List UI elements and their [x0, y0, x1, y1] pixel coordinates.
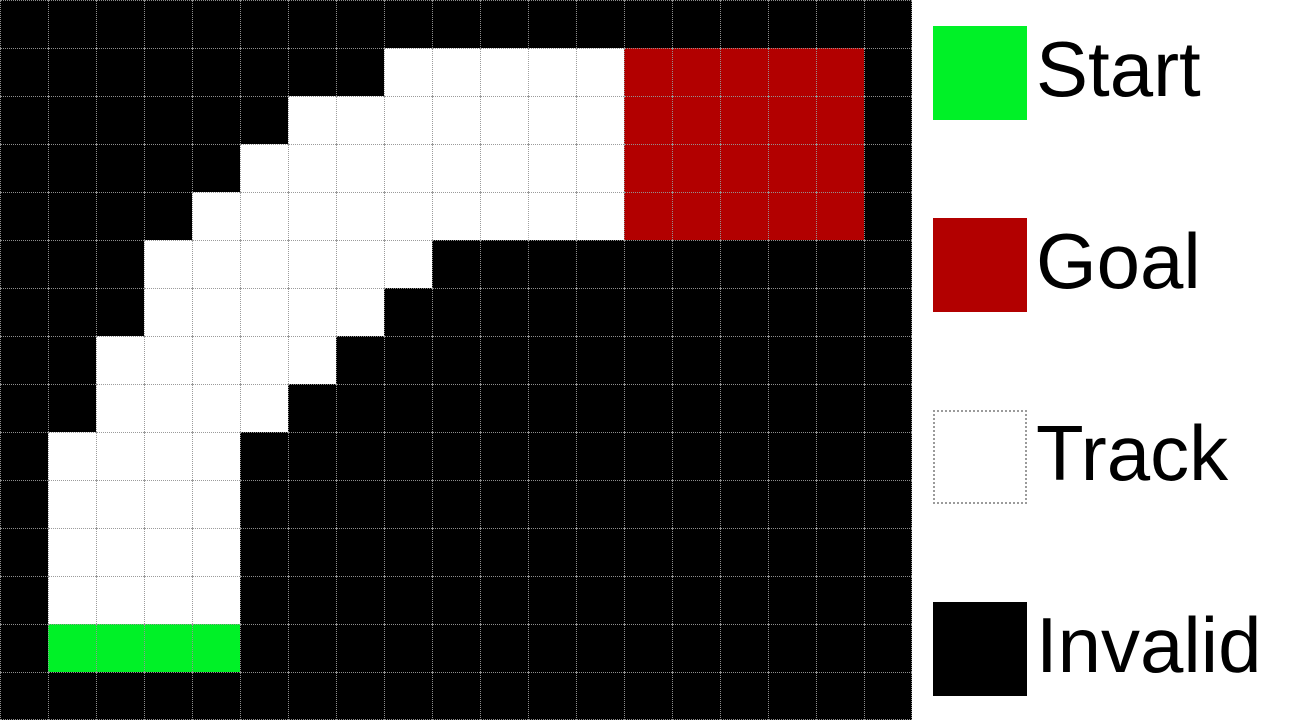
grid-cell-invalid — [672, 624, 720, 672]
grid-cell-track — [192, 240, 240, 288]
legend-panel: Start Goal Track Invalid — [912, 0, 1302, 720]
invalid-swatch — [933, 602, 1027, 696]
grid-cell-invalid — [240, 48, 288, 96]
grid-cell-goal — [672, 144, 720, 192]
grid-cell-track — [144, 336, 192, 384]
legend-label-invalid: Invalid — [1036, 606, 1261, 684]
grid-cell-invalid — [624, 528, 672, 576]
grid-cell-invalid — [816, 528, 864, 576]
grid-cell-track — [240, 144, 288, 192]
grid-cell-invalid — [240, 96, 288, 144]
grid-cell-invalid — [480, 576, 528, 624]
grid-cell-track — [288, 288, 336, 336]
grid-cell-invalid — [384, 384, 432, 432]
grid-cell-invalid — [432, 480, 480, 528]
legend-item-goal: Goal — [933, 218, 1201, 312]
grid-cell-invalid — [192, 48, 240, 96]
grid-cell-invalid — [576, 576, 624, 624]
grid-cell-track — [432, 96, 480, 144]
grid-cell-invalid — [432, 528, 480, 576]
grid-cell-track — [144, 480, 192, 528]
grid-cell-track — [480, 48, 528, 96]
grid-cell-invalid — [672, 0, 720, 48]
grid-cell-invalid — [864, 240, 912, 288]
grid-cell-invalid — [576, 384, 624, 432]
grid-cell-start — [144, 624, 192, 672]
legend-label-track: Track — [1036, 414, 1228, 492]
grid-cell-invalid — [432, 384, 480, 432]
grid-cell-invalid — [48, 240, 96, 288]
grid-cell-track — [288, 96, 336, 144]
grid-cell-track — [240, 192, 288, 240]
grid-cell-invalid — [480, 624, 528, 672]
grid-cell-invalid — [864, 288, 912, 336]
grid-cell-invalid — [240, 576, 288, 624]
grid-cell-invalid — [288, 48, 336, 96]
grid-cell-invalid — [48, 192, 96, 240]
grid-cell-invalid — [336, 672, 384, 720]
grid-cell-invalid — [384, 528, 432, 576]
grid-cell-invalid — [48, 336, 96, 384]
grid-cell-invalid — [720, 0, 768, 48]
grid-cell-track — [144, 528, 192, 576]
grid-cell-track — [480, 96, 528, 144]
grid-cell-invalid — [336, 480, 384, 528]
grid-cell-track — [480, 144, 528, 192]
grid-cell-invalid — [816, 672, 864, 720]
racetrack-figure: Start Goal Track Invalid — [0, 0, 1302, 720]
grid-cell-invalid — [528, 480, 576, 528]
grid-cell-track — [528, 192, 576, 240]
grid-cell-invalid — [48, 384, 96, 432]
grid-cell-invalid — [48, 48, 96, 96]
grid-cell-invalid — [0, 576, 48, 624]
grid-cell-track — [336, 144, 384, 192]
grid-cell-invalid — [576, 432, 624, 480]
grid-cell-invalid — [528, 288, 576, 336]
grid-cell-invalid — [336, 384, 384, 432]
grid-cell-invalid — [384, 288, 432, 336]
grid-cell-invalid — [240, 480, 288, 528]
grid-cell-invalid — [336, 48, 384, 96]
grid-cell-goal — [768, 144, 816, 192]
grid-cell-track — [528, 48, 576, 96]
grid-cell-invalid — [432, 288, 480, 336]
grid-cell-invalid — [864, 528, 912, 576]
grid-cell-goal — [672, 192, 720, 240]
grid-cell-goal — [720, 48, 768, 96]
grid-cell-invalid — [768, 240, 816, 288]
grid-cell-start — [192, 624, 240, 672]
grid-cell-invalid — [624, 480, 672, 528]
grid-cell-goal — [816, 96, 864, 144]
grid-cell-invalid — [384, 336, 432, 384]
grid-cell-invalid — [96, 144, 144, 192]
grid-cell-invalid — [480, 240, 528, 288]
grid-cell-invalid — [672, 288, 720, 336]
grid-cell-goal — [672, 48, 720, 96]
grid-cell-track — [288, 240, 336, 288]
grid-cell-invalid — [384, 624, 432, 672]
grid-cell-track — [528, 144, 576, 192]
grid-cell-invalid — [864, 672, 912, 720]
grid-cell-invalid — [576, 480, 624, 528]
grid-cell-track — [192, 528, 240, 576]
grid-cell-track — [336, 96, 384, 144]
grid-cell-invalid — [432, 432, 480, 480]
grid-cell-invalid — [816, 288, 864, 336]
grid-cell-invalid — [864, 0, 912, 48]
grid-cell-track — [192, 384, 240, 432]
grid-cell-track — [192, 192, 240, 240]
grid-cell-invalid — [48, 0, 96, 48]
grid-cell-track — [144, 288, 192, 336]
grid-cell-invalid — [240, 0, 288, 48]
track-swatch — [933, 410, 1027, 504]
grid-cell-invalid — [768, 288, 816, 336]
grid-cell-invalid — [336, 576, 384, 624]
grid-cell-track — [48, 480, 96, 528]
grid-cell-track — [288, 192, 336, 240]
grid-cell-invalid — [0, 48, 48, 96]
grid-cell-invalid — [576, 624, 624, 672]
grid-cell-goal — [624, 96, 672, 144]
grid-cell-invalid — [768, 432, 816, 480]
grid-cell-invalid — [624, 432, 672, 480]
grid-cell-start — [48, 624, 96, 672]
grid-cell-track — [96, 336, 144, 384]
grid-cell-invalid — [0, 96, 48, 144]
grid-cell-invalid — [144, 144, 192, 192]
grid-cell-invalid — [240, 672, 288, 720]
grid-cell-invalid — [96, 288, 144, 336]
grid-cell-invalid — [576, 528, 624, 576]
grid-cell-invalid — [96, 240, 144, 288]
grid-cell-invalid — [672, 384, 720, 432]
grid-cell-invalid — [0, 480, 48, 528]
grid-cell-invalid — [0, 0, 48, 48]
grid-cell-invalid — [624, 288, 672, 336]
grid-cell-invalid — [480, 672, 528, 720]
grid-cell-track — [96, 528, 144, 576]
grid-cell-invalid — [96, 0, 144, 48]
grid-cell-track — [480, 192, 528, 240]
grid-cell-invalid — [720, 432, 768, 480]
grid-cell-track — [528, 96, 576, 144]
grid-cell-track — [432, 144, 480, 192]
grid-cell-goal — [624, 144, 672, 192]
grid-cell-invalid — [672, 528, 720, 576]
grid-cell-track — [288, 144, 336, 192]
grid-cell-invalid — [432, 576, 480, 624]
grid-cell-invalid — [336, 528, 384, 576]
grid-cell-invalid — [240, 624, 288, 672]
grid-cell-invalid — [48, 288, 96, 336]
grid-cell-invalid — [528, 240, 576, 288]
grid-cell-invalid — [528, 528, 576, 576]
grid-cell-track — [144, 576, 192, 624]
grid-cell-track — [192, 576, 240, 624]
grid-cell-track — [240, 240, 288, 288]
grid-cell-invalid — [288, 576, 336, 624]
grid-cell-invalid — [768, 624, 816, 672]
grid-cell-invalid — [528, 432, 576, 480]
grid-cell-track — [576, 96, 624, 144]
grid-cell-invalid — [576, 288, 624, 336]
grid-cell-track — [192, 336, 240, 384]
grid-cell-invalid — [576, 240, 624, 288]
legend-item-invalid: Invalid — [933, 602, 1261, 696]
grid-cell-goal — [672, 96, 720, 144]
grid-cell-invalid — [0, 192, 48, 240]
grid-cell-invalid — [96, 96, 144, 144]
grid-cell-invalid — [864, 96, 912, 144]
grid-cell-track — [432, 192, 480, 240]
grid-cell-invalid — [672, 432, 720, 480]
grid-cell-invalid — [720, 624, 768, 672]
grid-cell-invalid — [48, 96, 96, 144]
grid-cell-invalid — [768, 480, 816, 528]
grid-cell-invalid — [96, 48, 144, 96]
grid-cell-track — [384, 192, 432, 240]
grid-cell-track — [384, 48, 432, 96]
grid-cell-invalid — [816, 384, 864, 432]
grid-cell-invalid — [0, 672, 48, 720]
grid-cell-goal — [624, 48, 672, 96]
grid-cell-invalid — [528, 384, 576, 432]
grid-cell-invalid — [0, 144, 48, 192]
grid-cell-goal — [720, 144, 768, 192]
grid-cell-invalid — [240, 528, 288, 576]
grid-cell-invalid — [672, 672, 720, 720]
grid-cell-invalid — [816, 336, 864, 384]
grid-cell-invalid — [672, 336, 720, 384]
grid-cell-goal — [624, 192, 672, 240]
grid-cell-invalid — [720, 480, 768, 528]
grid-cell-invalid — [624, 336, 672, 384]
grid-cell-invalid — [432, 672, 480, 720]
grid-cell-invalid — [720, 288, 768, 336]
grid-cell-invalid — [864, 384, 912, 432]
grid-cell-start — [96, 624, 144, 672]
grid-cell-track — [48, 576, 96, 624]
grid-cell-invalid — [816, 240, 864, 288]
grid-cell-invalid — [384, 432, 432, 480]
grid-cell-invalid — [864, 432, 912, 480]
grid-cell-track — [240, 288, 288, 336]
grid-cell-invalid — [0, 528, 48, 576]
grid-cell-invalid — [384, 480, 432, 528]
grid-cell-invalid — [528, 0, 576, 48]
grid-cell-invalid — [624, 240, 672, 288]
grid-cell-invalid — [192, 96, 240, 144]
grid-cell-invalid — [192, 144, 240, 192]
grid-cell-track — [192, 288, 240, 336]
grid-cell-track — [288, 336, 336, 384]
grid-cell-invalid — [528, 624, 576, 672]
grid-cell-invalid — [864, 192, 912, 240]
grid-cell-invalid — [144, 0, 192, 48]
grid-cell-goal — [768, 96, 816, 144]
grid-cell-track — [576, 48, 624, 96]
grid-cell-invalid — [144, 192, 192, 240]
grid-cell-track — [384, 96, 432, 144]
grid-cell-track — [96, 480, 144, 528]
grid-cell-invalid — [768, 0, 816, 48]
grid-cell-track — [144, 432, 192, 480]
grid-cell-invalid — [432, 624, 480, 672]
grid-cell-invalid — [528, 672, 576, 720]
start-swatch — [933, 26, 1027, 120]
grid-cell-invalid — [720, 240, 768, 288]
grid-cell-track — [144, 384, 192, 432]
grid-cell-goal — [768, 192, 816, 240]
grid-cell-invalid — [0, 240, 48, 288]
grid-cell-invalid — [384, 576, 432, 624]
grid-cell-track — [144, 240, 192, 288]
grid-cell-invalid — [768, 528, 816, 576]
grid-cell-invalid — [624, 576, 672, 624]
grid-cell-invalid — [288, 384, 336, 432]
grid-cell-invalid — [336, 336, 384, 384]
goal-swatch — [933, 218, 1027, 312]
grid-cell-track — [576, 144, 624, 192]
grid-cell-invalid — [192, 672, 240, 720]
grid-cell-track — [192, 480, 240, 528]
legend-item-track: Track — [933, 410, 1228, 504]
grid-cell-invalid — [288, 672, 336, 720]
grid-cell-invalid — [672, 240, 720, 288]
grid-cell-invalid — [96, 192, 144, 240]
grid-cell-invalid — [432, 240, 480, 288]
racetrack-grid — [0, 0, 912, 720]
grid-cell-goal — [720, 96, 768, 144]
grid-cell-invalid — [144, 48, 192, 96]
grid-cell-invalid — [768, 336, 816, 384]
grid-cell-invalid — [0, 336, 48, 384]
grid-cell-track — [432, 48, 480, 96]
grid-cell-invalid — [144, 672, 192, 720]
grid-cell-track — [336, 240, 384, 288]
grid-cell-invalid — [720, 528, 768, 576]
grid-cell-invalid — [480, 528, 528, 576]
grid-cell-invalid — [720, 672, 768, 720]
grid-cell-invalid — [480, 0, 528, 48]
grid-cell-invalid — [624, 384, 672, 432]
grid-cell-invalid — [48, 144, 96, 192]
grid-cell-invalid — [528, 576, 576, 624]
legend-label-start: Start — [1036, 30, 1201, 108]
grid-cell-goal — [768, 48, 816, 96]
grid-cell-invalid — [288, 528, 336, 576]
grid-cell-invalid — [0, 288, 48, 336]
grid-cell-invalid — [0, 432, 48, 480]
grid-cell-invalid — [720, 384, 768, 432]
grid-cell-track — [96, 432, 144, 480]
grid-cell-invalid — [864, 480, 912, 528]
grid-cell-invalid — [0, 624, 48, 672]
grid-cell-invalid — [288, 432, 336, 480]
legend-label-goal: Goal — [1036, 222, 1201, 300]
grid-cell-track — [384, 144, 432, 192]
legend-item-start: Start — [933, 26, 1201, 120]
grid-cell-invalid — [864, 48, 912, 96]
grid-cell-invalid — [480, 480, 528, 528]
grid-cell-invalid — [480, 336, 528, 384]
grid-cell-invalid — [192, 0, 240, 48]
grid-cell-track — [336, 288, 384, 336]
grid-cell-track — [576, 192, 624, 240]
grid-cell-track — [240, 336, 288, 384]
grid-cell-invalid — [576, 336, 624, 384]
grid-cell-invalid — [0, 384, 48, 432]
grid-cell-track — [48, 432, 96, 480]
grid-cell-invalid — [384, 672, 432, 720]
grid-cell-invalid — [672, 480, 720, 528]
grid-cell-goal — [816, 48, 864, 96]
grid-cell-invalid — [816, 624, 864, 672]
grid-cell-invalid — [144, 96, 192, 144]
grid-cell-invalid — [864, 624, 912, 672]
grid-cell-invalid — [672, 576, 720, 624]
grid-cell-invalid — [816, 576, 864, 624]
grid-cell-invalid — [384, 0, 432, 48]
grid-cell-invalid — [864, 576, 912, 624]
grid-cell-invalid — [720, 336, 768, 384]
grid-cell-invalid — [768, 672, 816, 720]
grid-cell-invalid — [336, 432, 384, 480]
grid-cell-invalid — [576, 672, 624, 720]
grid-cell-invalid — [720, 576, 768, 624]
grid-cell-invalid — [288, 480, 336, 528]
grid-cell-invalid — [816, 480, 864, 528]
grid-cell-track — [96, 576, 144, 624]
grid-cell-invalid — [576, 0, 624, 48]
grid-cell-invalid — [816, 432, 864, 480]
grid-cell-invalid — [336, 0, 384, 48]
grid-cell-invalid — [336, 624, 384, 672]
grid-cell-invalid — [432, 336, 480, 384]
grid-cell-invalid — [288, 0, 336, 48]
grid-cell-goal — [816, 192, 864, 240]
grid-cell-invalid — [240, 432, 288, 480]
grid-cell-track — [192, 432, 240, 480]
grid-cell-invalid — [624, 0, 672, 48]
grid-cell-goal — [816, 144, 864, 192]
grid-cell-invalid — [480, 288, 528, 336]
grid-cell-invalid — [48, 672, 96, 720]
grid-cell-invalid — [864, 144, 912, 192]
grid-cell-goal — [720, 192, 768, 240]
grid-cell-invalid — [528, 336, 576, 384]
grid-cell-invalid — [768, 384, 816, 432]
grid-cell-invalid — [288, 624, 336, 672]
grid-cell-track — [240, 384, 288, 432]
grid-cell-track — [48, 528, 96, 576]
grid-cell-invalid — [624, 624, 672, 672]
grid-cell-track — [96, 384, 144, 432]
grid-cell-invalid — [96, 672, 144, 720]
grid-cell-invalid — [768, 576, 816, 624]
grid-cell-track — [336, 192, 384, 240]
grid-cell-invalid — [624, 672, 672, 720]
grid-cell-invalid — [816, 0, 864, 48]
grid-cell-invalid — [480, 384, 528, 432]
grid-cell-invalid — [480, 432, 528, 480]
grid-cell-invalid — [432, 0, 480, 48]
grid-cell-invalid — [864, 336, 912, 384]
grid-cell-track — [384, 240, 432, 288]
